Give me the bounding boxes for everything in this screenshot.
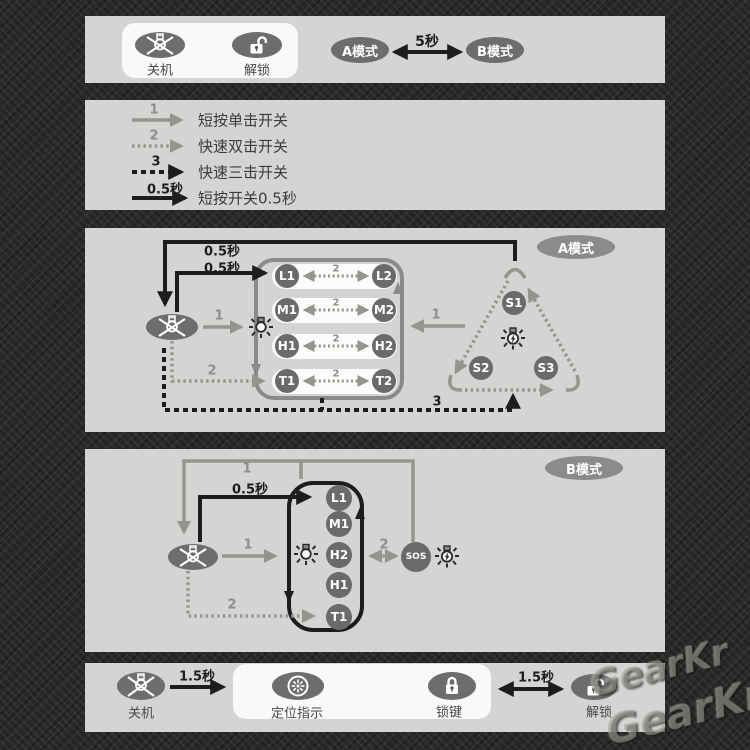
- beacon-icon: [285, 673, 311, 699]
- pair-key-L: 2: [333, 264, 340, 275]
- strobe-bulb-icon: [495, 322, 531, 356]
- stack-H2-text: H2: [330, 548, 348, 562]
- pair-key-H: 2: [333, 334, 340, 345]
- node-L1: L1: [275, 264, 299, 288]
- unlock-label: 解锁: [244, 60, 270, 79]
- node-S3-text: S3: [538, 361, 555, 375]
- press2-label: 2: [207, 364, 216, 379]
- node-M1-text: M1: [277, 303, 297, 317]
- mode-b-text: B模式: [477, 41, 513, 60]
- lock-node: [428, 672, 476, 700]
- press2-to-T1-arrow: [172, 341, 263, 381]
- node-S2-text: S2: [473, 361, 490, 375]
- closed-lock-icon: [437, 673, 467, 699]
- panel-lock: 关机 1.5秒 定位指示 锁键 1.5秒: [85, 663, 665, 732]
- node-H2-text: H2: [375, 339, 393, 353]
- node-T2: T2: [372, 369, 396, 393]
- node-S2: S2: [469, 356, 493, 380]
- off-label: 关机: [128, 703, 154, 722]
- stack-H2: H2: [326, 542, 352, 568]
- stack-L1-text: L1: [331, 491, 347, 505]
- stack-T1-text: T1: [331, 610, 348, 624]
- node-S1-text: S1: [506, 296, 523, 310]
- mode-a-badge: A模式: [537, 235, 615, 259]
- legend-label-3: 快速三击开关: [198, 162, 288, 183]
- sos-key-label: 2: [379, 538, 388, 553]
- hold-left-label: 1.5秒: [179, 666, 215, 685]
- node-S3: S3: [534, 356, 558, 380]
- hold-right-label: 1.5秒: [518, 667, 554, 686]
- node-H2: H2: [372, 334, 396, 358]
- panel-mode-b: B模式 1 0.5秒 1 2 2 L1 M1 H2 H1 T1: [85, 449, 665, 652]
- bulb-on-icon: [288, 538, 324, 572]
- crossed-bulb-icon: [140, 33, 180, 57]
- node-S1: S1: [502, 291, 526, 315]
- node-T1-text: T1: [279, 374, 296, 388]
- node-M2: M2: [372, 298, 396, 322]
- press1-label: 1: [214, 309, 223, 324]
- lock-label: 锁键: [436, 702, 462, 721]
- crossed-bulb-icon: [173, 545, 213, 569]
- mode-b-badge-text: B模式: [566, 459, 602, 478]
- pair-key-M: 2: [333, 298, 340, 309]
- node-L1-text: L1: [279, 269, 295, 283]
- legend-key-3: 3: [151, 155, 160, 170]
- legend-label-2: 快速双击开关: [198, 136, 288, 157]
- stack-M1-text: M1: [329, 517, 349, 531]
- pair-key-T: 2: [333, 369, 340, 380]
- node-T1: T1: [275, 369, 299, 393]
- legend-key-1: 1: [149, 103, 158, 118]
- stack-H1: H1: [326, 572, 352, 598]
- node-L2: L2: [372, 264, 396, 288]
- sos-text: SOS: [406, 552, 427, 562]
- panel-power-modes: 关机 解锁 A模式 5秒 B模式: [85, 16, 665, 83]
- mode-b-badge: B模式: [545, 456, 623, 480]
- off-label: 关机: [147, 60, 173, 79]
- panel-mode-a: A模式 0.5秒 0.5秒 1 2 3 1 L1 L2 M1 M2: [85, 228, 665, 432]
- node-M2-text: M2: [374, 303, 394, 317]
- stack-L1: L1: [326, 485, 352, 511]
- press1-label: 1: [243, 538, 252, 553]
- hold-to-L1-arrow: [177, 273, 265, 312]
- open-lock-icon: [242, 32, 272, 58]
- sos-node: SOS: [401, 542, 431, 572]
- off-node-lock: [117, 672, 165, 700]
- beacon-label: 定位指示: [271, 703, 323, 722]
- mode-a-node: A模式: [331, 37, 389, 63]
- flashlight-manual-diagram: 关机 解锁 A模式 5秒 B模式: [0, 0, 750, 750]
- node-H1-text: H1: [278, 339, 296, 353]
- mode-switch-time: 5秒: [415, 31, 439, 51]
- node-T2-text: T2: [376, 374, 393, 388]
- stack-M1: M1: [326, 511, 352, 537]
- legend-label-4: 短按开关0.5秒: [198, 188, 297, 209]
- node-M1: M1: [275, 298, 299, 322]
- crossed-bulb-icon: [152, 315, 192, 339]
- legend-key-hold: 0.5秒: [147, 179, 183, 198]
- crossed-bulb-icon: [121, 673, 161, 699]
- hold-l1-label: 0.5秒: [232, 479, 268, 498]
- press1-back-label: 1: [431, 308, 440, 323]
- node-L2-text: L2: [376, 269, 392, 283]
- mode-b-node: B模式: [466, 37, 524, 63]
- strobe-bulb-icon: [429, 540, 465, 574]
- off-node-b: [168, 544, 218, 570]
- node-H1: H1: [275, 334, 299, 358]
- off-node: [135, 32, 185, 58]
- hold-l1-label: 0.5秒: [204, 258, 240, 277]
- legend-key-2: 2: [149, 129, 158, 144]
- legend-label-1: 短按单击开关: [198, 110, 288, 131]
- off-node-a: [146, 314, 198, 340]
- press3-label: 3: [432, 395, 441, 410]
- unlock-node: [232, 32, 282, 58]
- bulb-on-icon: [243, 311, 279, 345]
- mode-a-badge-text: A模式: [558, 238, 594, 257]
- panel-legend: 1 2 3 0.5秒 短按单击开关 快速双击开关 快速三击开关 短按开关0.5秒: [85, 100, 665, 210]
- stack-H1-text: H1: [330, 578, 348, 592]
- beacon-node: [272, 672, 324, 700]
- stack-T1: T1: [326, 604, 352, 630]
- mode-a-text: A模式: [342, 41, 378, 60]
- press2-label: 2: [227, 598, 236, 613]
- loop-key-label: 1: [242, 462, 251, 477]
